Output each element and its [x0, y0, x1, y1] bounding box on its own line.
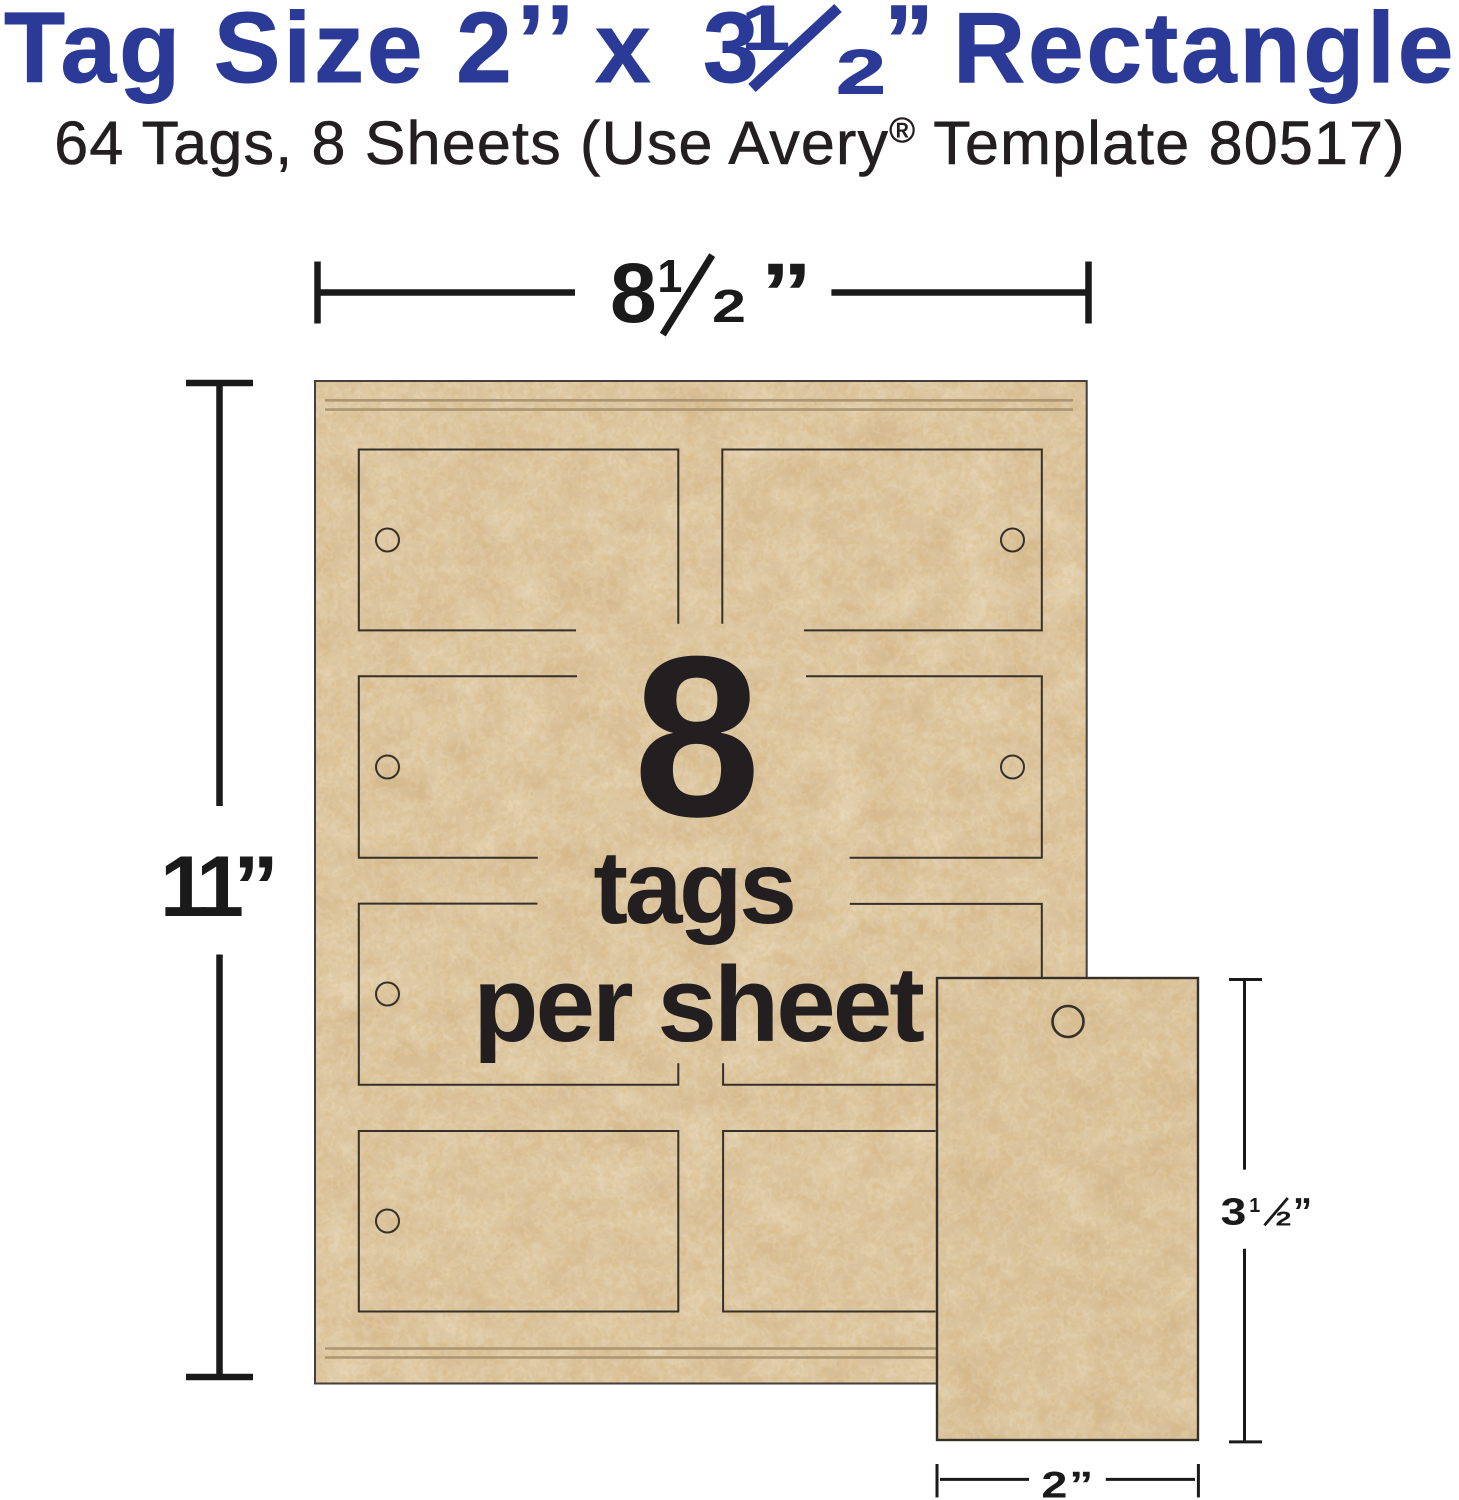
svg-text:tags: tags — [593, 830, 793, 946]
svg-text:Rectangle: Rectangle — [953, 0, 1456, 104]
svg-text:per sheet: per sheet — [473, 944, 924, 1064]
svg-text:’’: ’’ — [517, 0, 579, 97]
svg-text:”: ” — [884, 0, 934, 97]
svg-text:1: 1 — [1249, 1195, 1260, 1217]
svg-text:2: 2 — [1276, 1208, 1292, 1230]
svg-text:2: 2 — [836, 38, 886, 108]
svg-text:”: ” — [760, 246, 812, 340]
svg-text:2: 2 — [1041, 1464, 1067, 1500]
svg-text:64 Tags, 8 Sheets (Use Avery®: 64 Tags, 8 Sheets (Use Avery® Template 8… — [54, 109, 1405, 177]
svg-text:2: 2 — [712, 280, 746, 332]
svg-text:11: 11 — [160, 839, 242, 935]
svg-text:x: x — [595, 0, 651, 104]
svg-text:3: 3 — [1221, 1192, 1247, 1234]
svg-text:8: 8 — [633, 609, 760, 865]
svg-text:”: ” — [1069, 1464, 1093, 1500]
svg-text:”: ” — [1293, 1192, 1312, 1234]
svg-text:8: 8 — [610, 246, 657, 340]
svg-text:1: 1 — [657, 250, 682, 302]
svg-text:”: ” — [233, 839, 279, 935]
svg-text:Tag Size 2: Tag Size 2 — [4, 0, 515, 104]
